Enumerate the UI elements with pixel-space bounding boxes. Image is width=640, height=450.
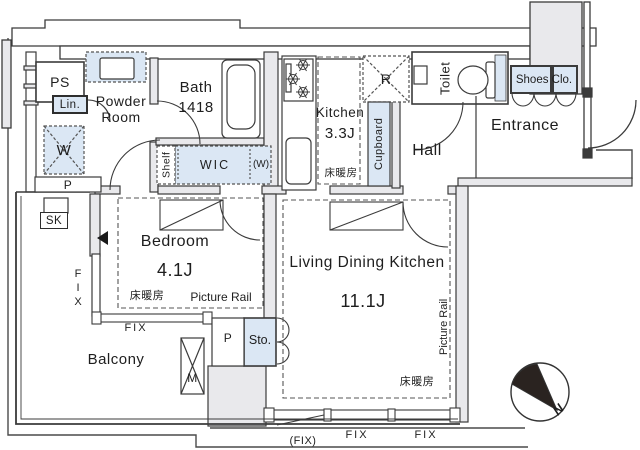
room-label-bath: Bath — [168, 79, 224, 96]
shoes-closet-doors — [512, 93, 576, 106]
storage-label: Sto. — [244, 328, 276, 352]
room-size-bedroom: 4.1J — [142, 259, 208, 281]
picture-rail-label-ldk: Picture Rail — [436, 286, 452, 368]
stove — [284, 59, 313, 101]
cupboard-label: Cupboard — [369, 105, 389, 183]
room-label-kitchen: Kitchen — [311, 104, 369, 120]
bathtub — [222, 60, 260, 138]
ldk-door — [330, 202, 448, 247]
pipe-duct-label: P — [35, 177, 101, 192]
room-label-bedroom: Bedroom — [132, 233, 218, 251]
vanity-basin — [100, 58, 134, 79]
toilet-counter — [495, 55, 506, 101]
fix-label-ldk-1: FIX — [337, 428, 377, 441]
fix-label-paren: (FIX) — [280, 434, 326, 447]
shelf-label: Shelf — [158, 147, 175, 183]
shoes-closet-label: Shoes Clo. — [511, 67, 577, 92]
room-label-entrance: Entrance — [482, 116, 568, 136]
room-label-toilet: Toilet — [435, 53, 455, 103]
fix-label-ldk-2: FIX — [406, 428, 446, 441]
fridge-label: R — [363, 56, 409, 102]
pipe-column-label: P — [213, 328, 243, 348]
slop-sink-label: SK — [40, 212, 68, 229]
slop-sink — [44, 198, 68, 213]
floor-plan: PS Powder Room Bath 1418 Kitchen 3.3J To… — [0, 0, 640, 450]
fix-label-bedroom-left: FIX — [70, 264, 86, 314]
room-size-bath: 1418 — [168, 98, 224, 116]
floor-heating-label-kitchen: 床暖房 — [319, 166, 363, 179]
entrance-door-arc — [588, 100, 636, 148]
wic-label: WIC — [177, 156, 253, 174]
room-label-ldk: Living Dining Kitchen — [284, 254, 450, 272]
floor-heating-label-ldk: 床暖房 — [394, 374, 440, 388]
room-size-ldk: 11.1J — [330, 290, 396, 312]
meter-box-label: M — [182, 368, 203, 388]
floor-heating-label-bedroom: 床暖房 — [124, 288, 170, 302]
washer-label: W — [44, 126, 84, 174]
kitchen-sink — [286, 138, 311, 184]
toilet-control — [414, 66, 427, 84]
linen-label: Lin. — [52, 95, 88, 114]
picture-rail-label-bedroom: Picture Rail — [182, 290, 260, 304]
fix-label-bedroom-bottom: FIX — [115, 321, 157, 334]
room-label-balcony: Balcony — [78, 350, 154, 368]
room-label-hall: Hall — [402, 141, 452, 161]
room-label-powder: Powder Room — [84, 90, 158, 128]
room-size-kitchen: 3.3J — [311, 124, 369, 142]
